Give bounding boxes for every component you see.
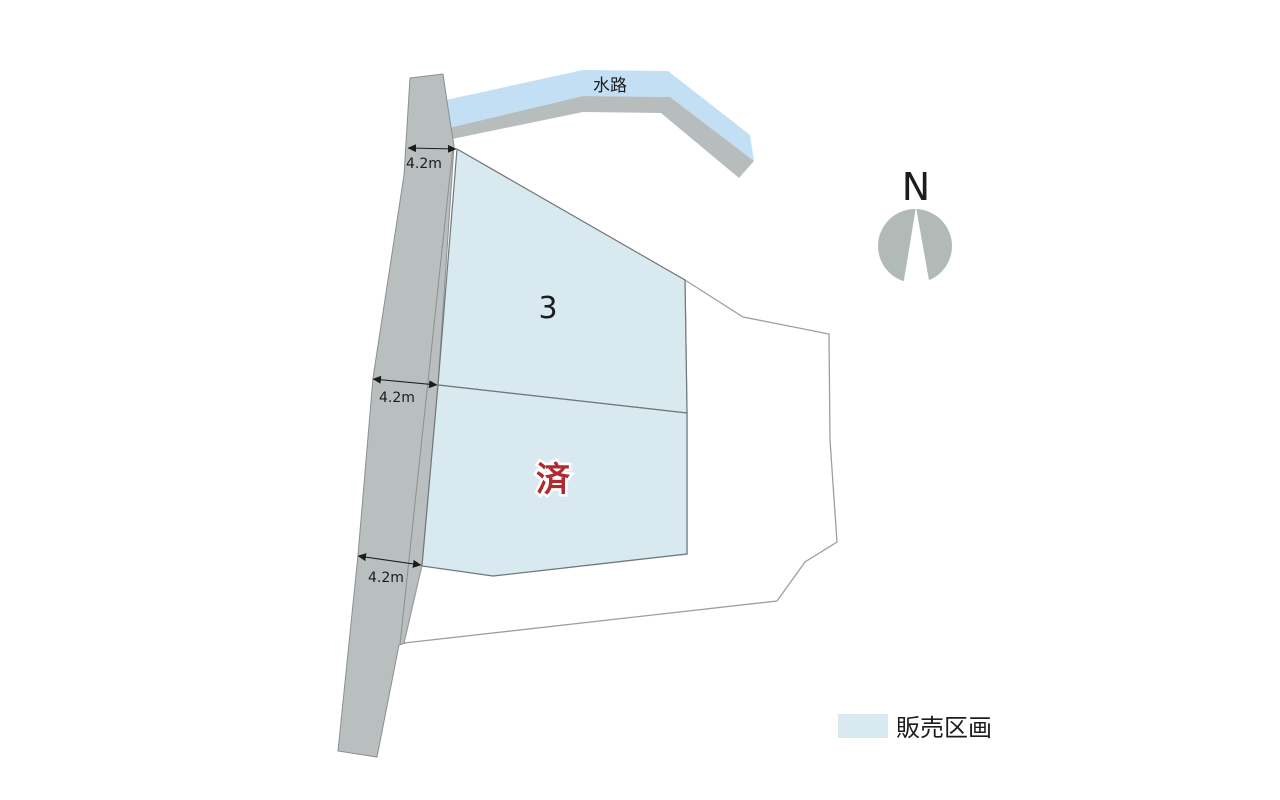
legend-swatch-icon <box>838 714 888 738</box>
compass-north-label: N <box>902 165 930 209</box>
dimension-label-bottom: 4.2m <box>368 570 404 586</box>
parcel-3-label: 3 <box>538 291 557 326</box>
waterway-label: 水路 <box>593 76 627 96</box>
compass: N <box>878 165 952 286</box>
lot-map-svg: 3 済 水路 4.2m 4.2m 4.2m N 販売区画 <box>0 0 1280 800</box>
legend: 販売区画 <box>838 714 992 742</box>
lot-map-canvas: 3 済 水路 4.2m 4.2m 4.2m N 販売区画 <box>0 0 1280 800</box>
parcel-3 <box>438 149 687 413</box>
parcel-sold-label: 済 <box>536 460 571 500</box>
dimension-label-top: 4.2m <box>406 156 442 172</box>
legend-label: 販売区画 <box>896 714 992 742</box>
dimension-label-middle: 4.2m <box>379 390 415 406</box>
